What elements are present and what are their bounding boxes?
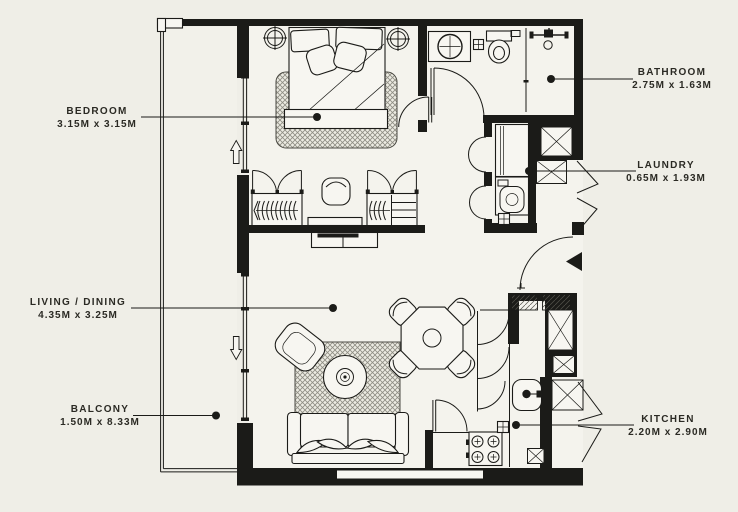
room-dimensions: 1.50M x 8.33M [60,416,140,429]
room-label-laundry: LAUNDRY 0.65M x 1.93M [626,159,706,185]
room-name: LAUNDRY [626,159,706,172]
room-name: BATHROOM [632,66,712,79]
room-dimensions: 3.15M x 3.15M [57,118,137,131]
bottom-wall-window [337,471,483,479]
room-label-living-dining: LIVING / DINING 4.35M x 3.25M [30,296,126,322]
room-dimensions: 2.20M x 2.90M [628,426,708,439]
room-label-balcony: BALCONY 1.50M x 8.33M [60,403,140,429]
room-name: BEDROOM [57,105,137,118]
room-dimensions: 2.75M x 1.63M [632,79,712,92]
floor-plan-canvas: BEDROOM 3.15M x 3.15M BATHROOM 2.75M x 1… [0,0,738,512]
bed [285,27,388,128]
stove [466,432,502,466]
kitchen-sink [513,380,542,411]
bathroom-floor-drain [474,40,484,50]
room-label-kitchen: KITCHEN 2.20M x 2.90M [628,413,708,439]
room-name: LIVING / DINING [30,296,126,309]
room-label-bedroom: BEDROOM 3.15M x 3.15M [57,105,137,131]
tv-console [312,233,378,248]
room-label-bathroom: BATHROOM 2.75M x 1.63M [632,66,712,92]
room-name: BALCONY [60,403,140,416]
room-dimensions: 0.65M x 1.93M [626,172,706,185]
room-name: KITCHEN [628,413,708,426]
bathroom-vanity [429,32,471,62]
bed-bench [285,110,388,129]
room-dimensions: 4.35M x 3.25M [30,309,126,322]
sofa [288,413,409,464]
coffee-table [324,356,367,399]
